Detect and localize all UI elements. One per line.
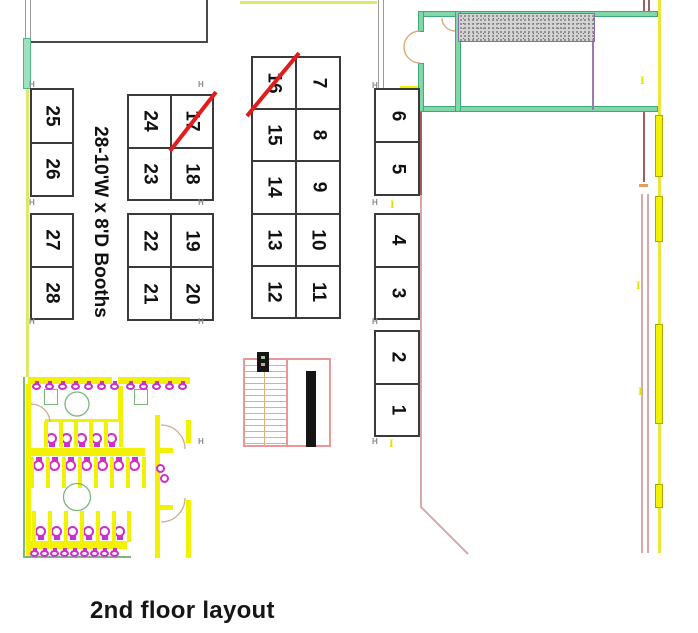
crossed-out-mark-booth-17 (170, 92, 216, 151)
column-circle (64, 484, 91, 511)
column-circle (65, 392, 89, 416)
crossed-out-mark-booth-16 (247, 53, 299, 116)
door-arc (442, 18, 455, 31)
door-arc (161, 425, 185, 449)
plan-annotations (0, 0, 698, 633)
floor-plan: 2526 2728 24172318 22192120 167158149131… (0, 0, 698, 633)
page-title: 2nd floor layout (90, 597, 275, 625)
door-arc (404, 47, 420, 63)
door-arc (31, 404, 50, 422)
wall-diagonal (421, 507, 468, 554)
door-arc (161, 498, 185, 522)
door-arc (404, 31, 420, 47)
